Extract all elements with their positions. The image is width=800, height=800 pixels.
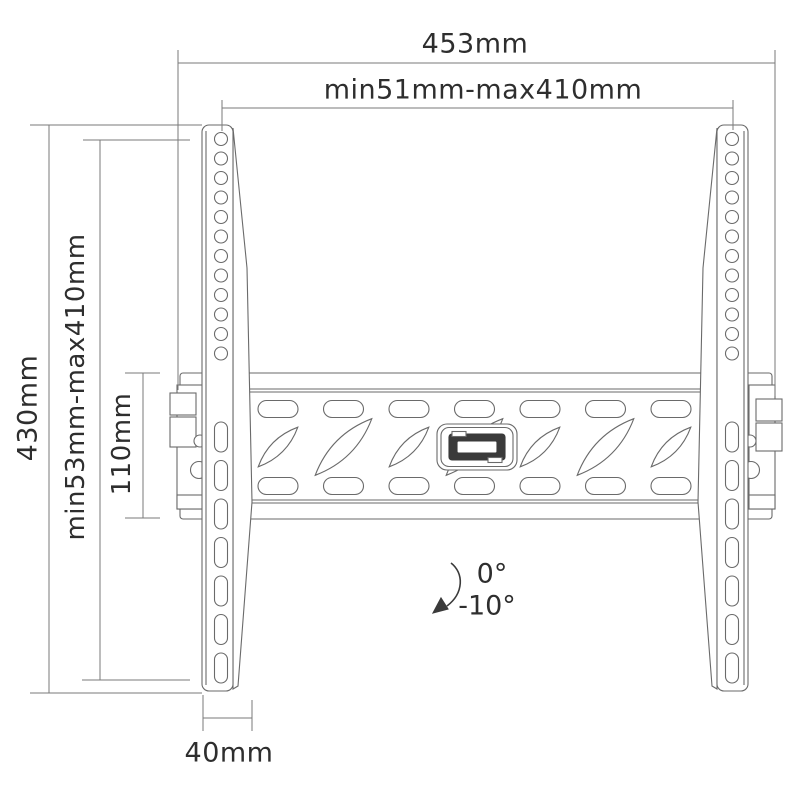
technical-drawing-canvas: 453mm min51mm-max410mm 430mm min53mm-max… xyxy=(0,0,800,800)
dim-label-hole-pattern-height: min53mm-max410mm xyxy=(63,233,89,540)
right-arm-flange xyxy=(698,128,717,689)
dim-label-arm-width: 40mm xyxy=(185,740,274,767)
dim-label-rail-height: 110mm xyxy=(109,393,135,496)
mount-rail xyxy=(170,373,782,519)
tilt-label-max: 0° xyxy=(477,561,508,588)
center-latch xyxy=(437,424,517,470)
left-arm-flange xyxy=(233,128,252,689)
left-arm-plate xyxy=(202,125,233,691)
tilt-label-min: -10° xyxy=(458,593,516,620)
dim-label-overall-width: 453mm xyxy=(422,31,529,58)
dim-label-overall-height: 430mm xyxy=(15,355,42,462)
dim-label-hole-pattern-width: min51mm-max410mm xyxy=(324,77,643,104)
tilt-arrow-icon xyxy=(433,563,460,613)
right-rail-clamp xyxy=(749,385,782,509)
